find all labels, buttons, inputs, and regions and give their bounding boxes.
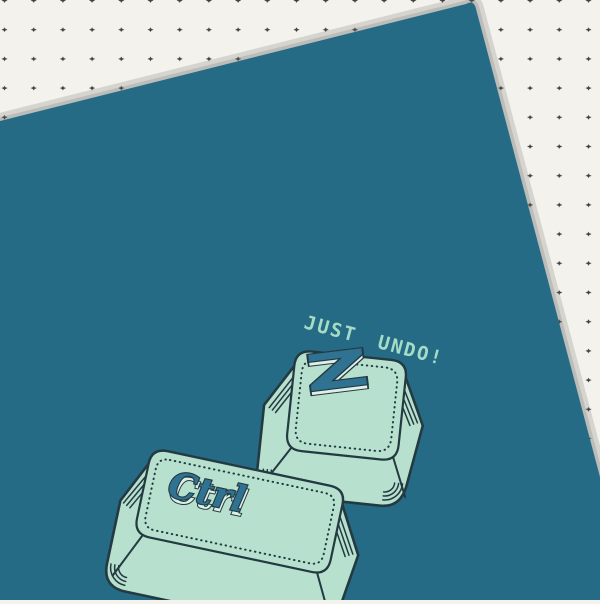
artwork-canvas: JUST UNDO! Z Z xyxy=(0,0,600,600)
poster-mockup-scene: JUST UNDO! Z Z xyxy=(0,0,600,600)
key-z-label: Z xyxy=(302,338,372,404)
